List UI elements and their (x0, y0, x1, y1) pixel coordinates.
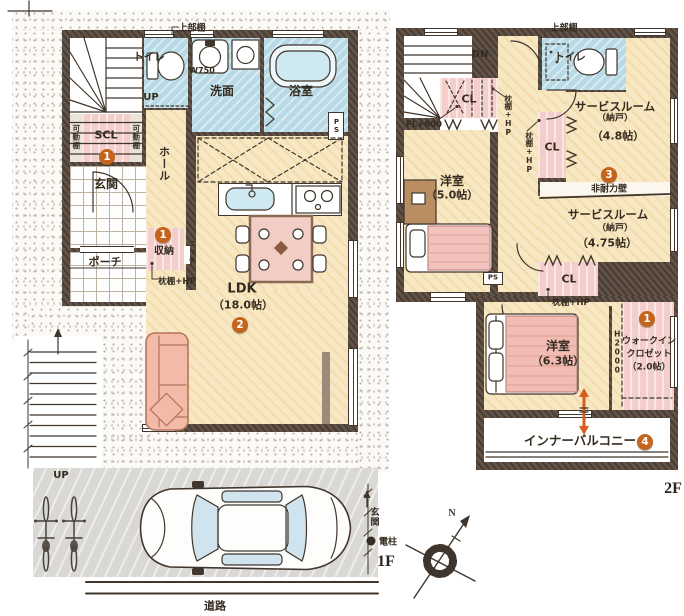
label-h2000: H2000 (613, 330, 621, 375)
label-utility-pole: 電柱 (379, 539, 397, 548)
badge-scl: 1 (99, 149, 115, 165)
window (272, 30, 324, 38)
room-label-service475: サービスルーム (568, 209, 648, 221)
badge-service-room: 3 (601, 167, 617, 183)
label-upper-shelf-1f: 上部棚 (178, 25, 205, 34)
label-w750: W750 (189, 67, 215, 75)
window (396, 156, 404, 204)
label-dn: DN (472, 50, 489, 60)
room-label-toilet-2f: トイレ (554, 52, 586, 63)
window (144, 30, 174, 38)
room-label-wic-size: （2.0帖） (628, 364, 671, 373)
room-label-bedroom5: 洋室 (440, 175, 464, 187)
label-fl600: FL+600 (406, 121, 442, 130)
label-pillow-shelf-1f: 枕棚+HP (158, 278, 195, 287)
label-upper-shelf-2f: 上部棚 (550, 25, 577, 34)
label-movable-shelf: 可動棚 (132, 124, 140, 150)
floor-plan-page: { "palette": { "wall":"#57483d", "floor"… (0, 0, 684, 616)
room-label-wic1: ウォークイン (622, 338, 676, 347)
room-label-bedroom63: 洋室 (546, 340, 570, 352)
window (634, 28, 666, 36)
room-label-porch: ポーチ (89, 257, 122, 268)
room-label-toilet-1f: トイレ (133, 52, 165, 63)
road-lines (86, 582, 378, 594)
badge-ldk: 2 (232, 317, 248, 333)
label-movable-shelf: 可動棚 (72, 124, 80, 150)
label-entrance-direction: 玄関 (369, 507, 378, 527)
room-label-bedroom5-size: （5.0帖） (426, 190, 479, 201)
h2000-wall (609, 306, 612, 410)
label-pillow-shelf-2f: 枕棚+HP (525, 132, 533, 174)
label-pillow-shelf-2f: 枕棚+HP (552, 299, 589, 308)
badge-balcony: 4 (637, 434, 653, 450)
room-toilet-2f (542, 38, 626, 90)
window (396, 222, 404, 268)
room-label-service48-size: （4.8帖） (592, 131, 645, 142)
window (348, 240, 358, 298)
room-label-cl3: CL (561, 274, 576, 285)
room-label-cl2: CL (544, 142, 559, 153)
balcony-opening (558, 410, 592, 418)
label-niche: ニッチ (188, 239, 196, 265)
room-label-entrance: 玄関 (94, 178, 118, 190)
room-label-bathroom: 浴室 (289, 85, 313, 97)
entrance-door (80, 246, 134, 253)
compass-north-label: N (448, 508, 456, 519)
room-label-hall: ホール (159, 146, 170, 182)
room-label-service475-tag: （納戸） (597, 225, 633, 234)
room-bedroom-5 (404, 130, 490, 292)
site-ground (12, 30, 64, 342)
label-up-stairs: UP (143, 93, 158, 103)
site-ground (356, 30, 390, 472)
room-label-bedroom63-size: （6.3帖） (532, 356, 585, 367)
driveway (33, 468, 378, 577)
window (430, 292, 466, 302)
floor-label-2f: 2F (664, 481, 682, 497)
room-label-service48-tag: （納戸） (597, 115, 633, 124)
window (348, 348, 358, 426)
room-label-ldk-size: （18.0帖） (213, 300, 273, 311)
room-label-cl1: CL (461, 94, 476, 105)
window (670, 98, 678, 144)
window (142, 424, 176, 432)
window (424, 28, 458, 36)
label-non-bearing-wall: 非耐力壁 (591, 186, 627, 195)
sliding-door-leaf (322, 352, 330, 424)
label-ps-1f: PS (333, 118, 340, 134)
label-ps-2f: PS (488, 275, 498, 282)
floor-label-1f: 1F (377, 554, 395, 570)
label-road: 道路 (204, 601, 226, 612)
vestibule-2f (538, 90, 566, 112)
label-up-driveway: UP (53, 471, 68, 481)
approach-stairs-area (14, 336, 102, 482)
kitchen-counter-icon (218, 183, 342, 216)
badge-storage: 1 (155, 227, 171, 243)
window (670, 208, 678, 252)
label-pillow-shelf-2f: 枕棚+HP (504, 95, 512, 137)
room-label-service48: サービスルーム (575, 101, 655, 113)
badge-wic: 1 (639, 311, 655, 327)
room-service-48 (626, 38, 670, 94)
room-label-scl: SCL (94, 130, 117, 141)
room-label-storage: 収納 (154, 247, 174, 257)
room-label-service475-size: （4.75帖） (577, 238, 637, 249)
room-label-ldk: LDK (227, 283, 256, 296)
room-label-wic2: クロゼット (626, 351, 671, 360)
room-label-washroom: 洗面 (210, 85, 234, 97)
compass-icon: N (406, 508, 475, 598)
room-label-inner-balcony: インナーバルコニー (524, 435, 636, 448)
